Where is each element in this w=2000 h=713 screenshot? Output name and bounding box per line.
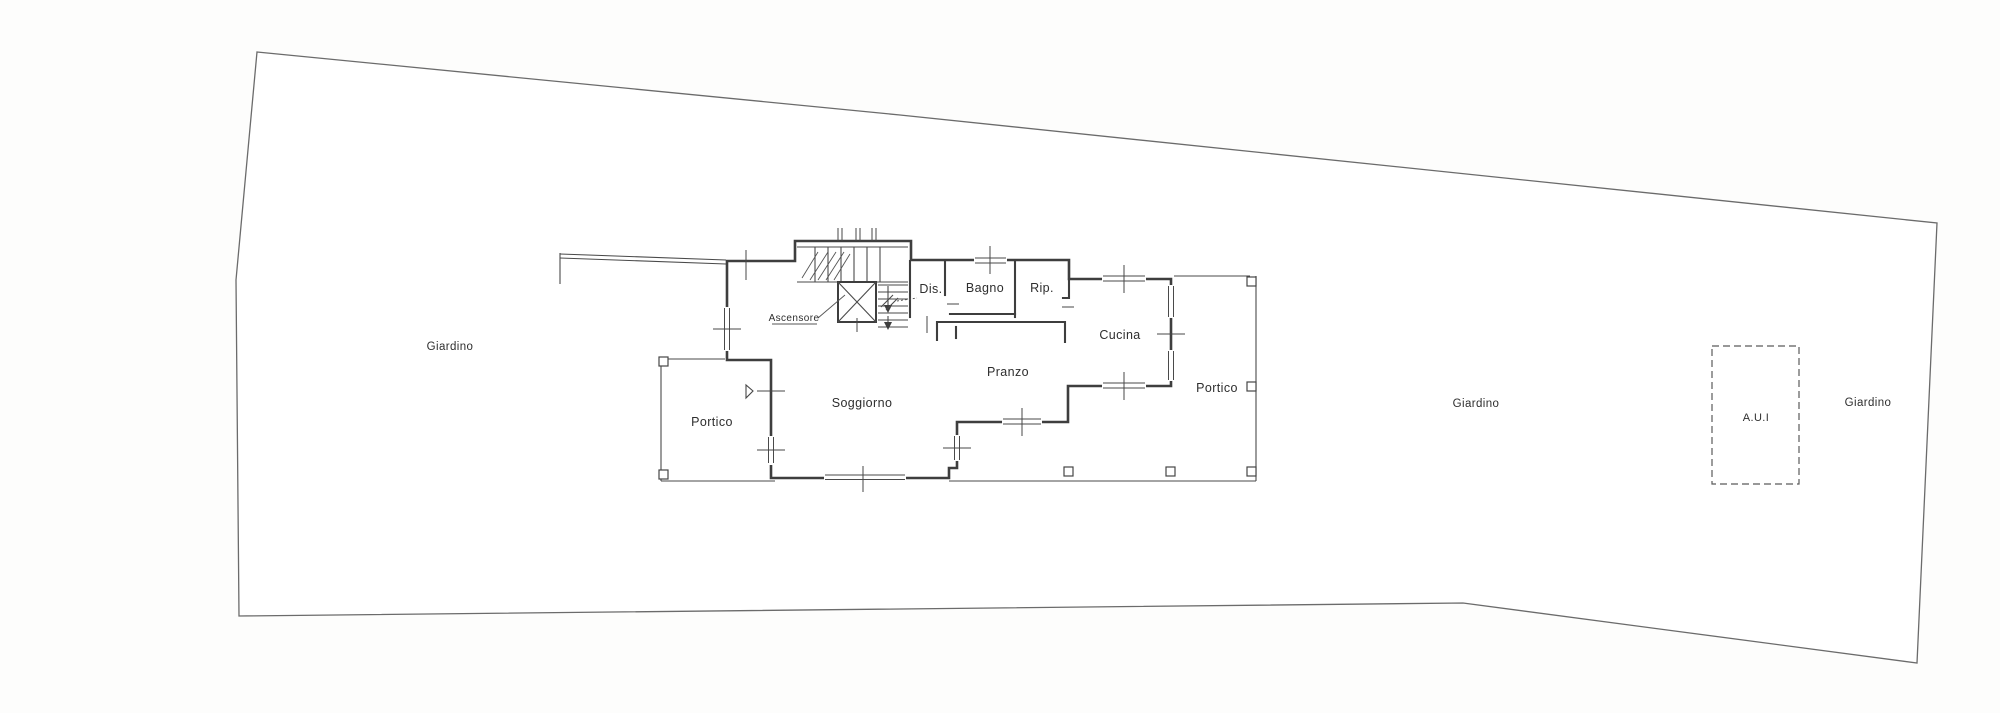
label-annex-aui: A.U.I [1743, 412, 1769, 424]
label-soggiorno: Soggiorno [832, 396, 893, 410]
portico-pillar [1166, 467, 1175, 476]
portico-pillar [1247, 277, 1256, 286]
portico-pillar [659, 357, 668, 366]
portico-pillar [1247, 382, 1256, 391]
label-garden-middle: Giardino [1453, 398, 1500, 410]
label-portico-left: Portico [691, 415, 733, 429]
portico-pillar [1064, 467, 1073, 476]
label-rip: Rip. [1030, 281, 1054, 295]
label-bagno: Bagno [966, 281, 1004, 295]
label-dis: Dis. [919, 282, 942, 296]
label-ascensore: Ascensore [769, 313, 820, 324]
plot-boundary [236, 52, 1937, 663]
floor-plan-drawing: Giardino Portico Soggiorno Ascensore Dis… [0, 0, 2000, 713]
label-garden-right: Giardino [1845, 397, 1892, 409]
scanned-floor-plan-page: Giardino Portico Soggiorno Ascensore Dis… [0, 0, 2000, 713]
portico-pillar [1247, 467, 1256, 476]
label-portico-right: Portico [1196, 381, 1238, 395]
label-garden-left: Giardino [427, 341, 474, 353]
label-pranzo: Pranzo [987, 365, 1029, 379]
label-cucina: Cucina [1099, 328, 1140, 342]
portico-pillar [659, 470, 668, 479]
